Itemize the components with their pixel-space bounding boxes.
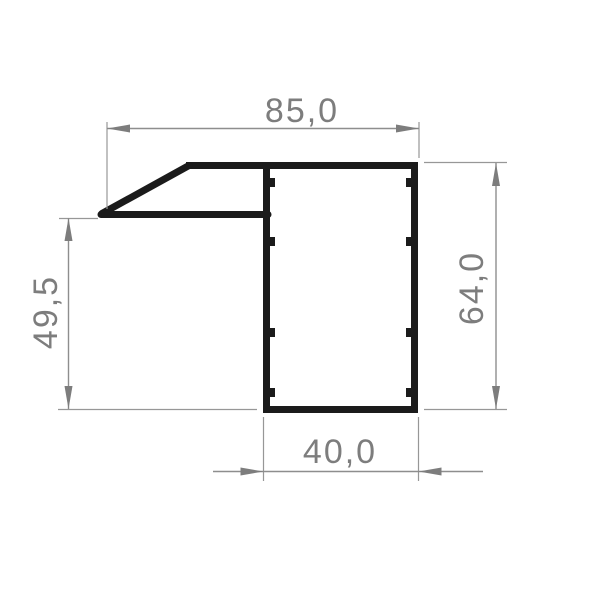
arrowhead-inward-left [241,468,264,476]
profile-inner-nub [270,388,275,397]
arrowhead-right [396,125,419,133]
dimension-label-top-width: 85,0 [265,92,339,130]
profile-inner-nub [270,328,275,337]
profile-inner-nub [406,178,411,187]
profile-body-rect [267,166,415,410]
arrowhead-left [107,125,130,133]
profile-inner-nub [406,328,411,337]
dimension-right-height: 64,0 [424,163,507,410]
profile-inner-nub [270,178,275,187]
profile-inner-nub [406,237,411,246]
dimension-bottom-width: 40,0 [213,417,483,481]
arrowhead-up [65,218,73,241]
technical-drawing-canvas: 85,0 64,0 49,5 40,0 [0,0,600,600]
arrowhead-down [65,386,73,409]
profile-inner-nub [270,237,275,246]
dimension-label-left-height: 49,5 [27,275,65,349]
profile-drawing-svg: 85,0 64,0 49,5 40,0 [0,0,600,600]
profile-outline [101,166,415,410]
profile-fin-diagonal [102,166,189,214]
arrowhead-inward-right [419,468,442,476]
dimension-label-right-height: 64,0 [453,251,491,325]
dimension-left-height: 49,5 [27,218,257,410]
arrowhead-up [492,163,500,186]
profile-inner-nub [406,388,411,397]
dimension-label-bottom-width: 40,0 [303,433,377,471]
arrowhead-down [492,386,500,409]
